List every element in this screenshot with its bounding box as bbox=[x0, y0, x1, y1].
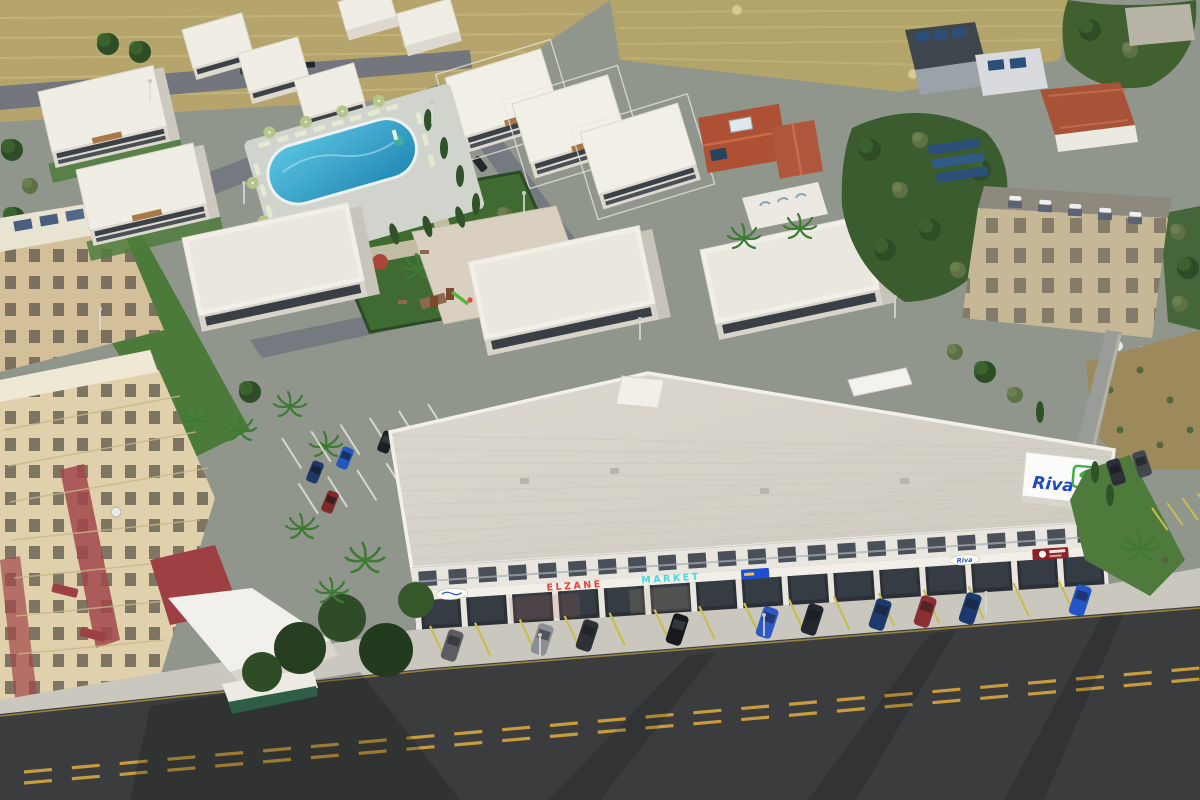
roof-vent bbox=[760, 488, 769, 495]
riva-logo-text: Riva bbox=[1032, 473, 1075, 497]
solar-water-heater bbox=[1098, 208, 1113, 221]
hay-bale bbox=[732, 5, 742, 15]
tree bbox=[1, 139, 23, 161]
tree bbox=[274, 622, 326, 674]
spring-rider bbox=[467, 297, 472, 302]
tree bbox=[1170, 224, 1186, 240]
tree bbox=[1177, 257, 1199, 279]
tree bbox=[1172, 296, 1188, 312]
cypress bbox=[1091, 461, 1099, 483]
bush bbox=[1162, 557, 1169, 564]
solar-water-heater bbox=[1008, 196, 1023, 209]
bush bbox=[1187, 427, 1194, 434]
roof-vent bbox=[900, 478, 909, 485]
tree bbox=[912, 132, 928, 148]
scene-canvas: ELZANE MARKET Riva Riva bbox=[0, 0, 1200, 800]
solar-panel bbox=[952, 27, 967, 37]
white-house-solar bbox=[975, 48, 1048, 96]
satellite-dish bbox=[111, 507, 121, 517]
bush bbox=[1167, 397, 1174, 404]
tree bbox=[859, 139, 881, 161]
tree bbox=[874, 239, 896, 261]
shop-sign-riva-small: Riva bbox=[956, 556, 972, 565]
solar-panel bbox=[988, 59, 1005, 71]
shop-display bbox=[629, 586, 690, 614]
cypress bbox=[456, 165, 464, 187]
tree bbox=[974, 361, 996, 383]
cypress bbox=[440, 137, 448, 159]
tree bbox=[129, 41, 151, 63]
bench bbox=[398, 300, 407, 304]
apt-windows bbox=[962, 208, 1168, 338]
bench bbox=[420, 250, 429, 254]
flowering-tree bbox=[372, 254, 388, 270]
bush bbox=[1157, 442, 1164, 449]
bush bbox=[1117, 427, 1124, 434]
play-tower bbox=[430, 296, 438, 308]
tree bbox=[97, 33, 119, 55]
solar-panel bbox=[1010, 57, 1027, 69]
aerial-render-image: Aerial 3D architectural rendering of the… bbox=[0, 0, 1200, 800]
solar-panel bbox=[934, 29, 949, 39]
tree bbox=[239, 381, 261, 403]
cypress bbox=[1036, 401, 1044, 423]
solar-array-small bbox=[928, 138, 989, 182]
tree bbox=[892, 182, 908, 198]
bush bbox=[1137, 367, 1144, 374]
roof-vent bbox=[610, 468, 619, 475]
solar-panel bbox=[916, 31, 931, 41]
solar-water-heater bbox=[1038, 200, 1053, 213]
tree bbox=[1007, 387, 1023, 403]
tree bbox=[242, 652, 282, 692]
rooftop-stair-box bbox=[616, 376, 664, 408]
solar-water-heater bbox=[1068, 204, 1083, 217]
tree bbox=[22, 178, 38, 194]
cypress bbox=[472, 193, 480, 215]
cypress bbox=[1106, 484, 1114, 506]
solar-water-heater bbox=[1128, 212, 1143, 225]
tree bbox=[919, 219, 941, 241]
house-roof-tan bbox=[1125, 4, 1195, 46]
tree bbox=[1079, 19, 1101, 41]
shop-display bbox=[509, 593, 580, 622]
tree bbox=[947, 344, 963, 360]
tree bbox=[950, 262, 966, 278]
tree bbox=[359, 623, 413, 677]
roof-vent bbox=[520, 478, 529, 485]
house-roof bbox=[975, 48, 1048, 96]
cypress bbox=[424, 109, 432, 131]
tree bbox=[398, 582, 434, 618]
